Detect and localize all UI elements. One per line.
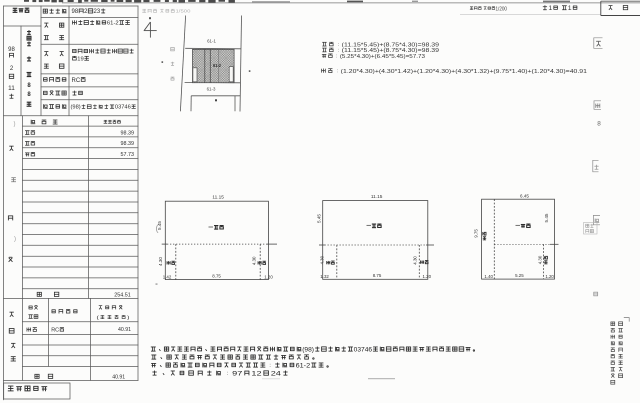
svg-text:4.30: 4.30: [319, 255, 324, 264]
svg-text:61-2: 61-2: [296, 362, 311, 369]
svg-text:(98): (98): [302, 346, 314, 353]
svg-text:9.75: 9.75: [473, 229, 478, 238]
svg-text:57.73: 57.73: [120, 152, 134, 158]
svg-text:11.15: 11.15: [371, 194, 383, 199]
svg-text:254.51: 254.51: [114, 292, 131, 298]
svg-text:): ): [14, 122, 16, 128]
svg-text:1.20: 1.20: [423, 274, 432, 279]
svg-text:): ): [127, 315, 130, 321]
svg-text:5.45: 5.45: [544, 213, 549, 222]
svg-text:(1.20*4.30)+(4.30*1.42)+(1.20*: (1.20*4.30)+(4.30*1.42)+(1.20*4.30)+(4.3…: [341, 69, 587, 75]
svg-text:1: 1: [568, 6, 573, 12]
svg-text:5.45: 5.45: [316, 214, 321, 223]
svg-text:5.25: 5.25: [515, 273, 524, 278]
svg-text:6.45: 6.45: [520, 194, 529, 199]
svg-text:4.30: 4.30: [158, 257, 163, 266]
svg-text:8.75: 8.75: [373, 273, 382, 278]
svg-text:1.42: 1.42: [163, 274, 172, 279]
svg-text:(: (: [156, 223, 159, 233]
svg-text:03746: 03746: [354, 346, 373, 353]
svg-text:RC: RC: [51, 328, 59, 334]
svg-text:RC: RC: [72, 78, 81, 84]
svg-text:1.20: 1.20: [545, 274, 554, 279]
svg-text:8: 8: [27, 92, 31, 98]
svg-text:40.91: 40.91: [118, 327, 131, 333]
svg-text:61-2: 61-2: [107, 21, 119, 27]
svg-text:): ): [14, 237, 16, 243]
svg-text:98.39: 98.39: [120, 130, 134, 136]
svg-text:19: 19: [77, 57, 83, 63]
svg-text:4.30: 4.30: [251, 256, 256, 265]
svg-text:98: 98: [8, 47, 15, 53]
svg-text:98.39: 98.39: [120, 141, 134, 147]
svg-text:23: 23: [94, 9, 101, 15]
svg-text:8: 8: [597, 121, 601, 128]
svg-text:24: 24: [271, 370, 282, 377]
svg-text:98: 98: [72, 9, 79, 15]
svg-text:(: (: [97, 315, 100, 321]
svg-text:1.20: 1.20: [264, 274, 273, 279]
svg-text:2: 2: [10, 66, 14, 72]
svg-text:11: 11: [8, 86, 15, 92]
svg-text:2: 2: [84, 9, 88, 15]
svg-text:61-2: 61-2: [213, 63, 222, 68]
svg-text:8.75: 8.75: [212, 273, 221, 278]
svg-text:12: 12: [251, 370, 262, 377]
svg-text:1.32: 1.32: [320, 274, 329, 279]
svg-text:1/500: 1/500: [175, 9, 190, 15]
svg-text:97: 97: [232, 370, 243, 377]
svg-text:1: 1: [548, 6, 553, 12]
svg-text:03746: 03746: [115, 105, 131, 111]
svg-text:61-3: 61-3: [207, 86, 216, 91]
svg-text:8: 8: [27, 83, 31, 89]
svg-text:11.15: 11.15: [212, 194, 224, 199]
svg-text:1.40: 1.40: [484, 274, 493, 279]
svg-text:(98): (98): [71, 105, 81, 111]
svg-text:40.91: 40.91: [112, 374, 125, 380]
svg-text:4.30: 4.30: [538, 255, 543, 264]
svg-text:61-1: 61-1: [207, 39, 216, 44]
svg-text:(5.25*4.30)+(6.45*5.45)=57.73: (5.25*4.30)+(6.45*5.45)=57.73: [340, 54, 425, 60]
svg-text:1/200: 1/200: [495, 6, 507, 12]
svg-text:4.30: 4.30: [412, 256, 417, 265]
